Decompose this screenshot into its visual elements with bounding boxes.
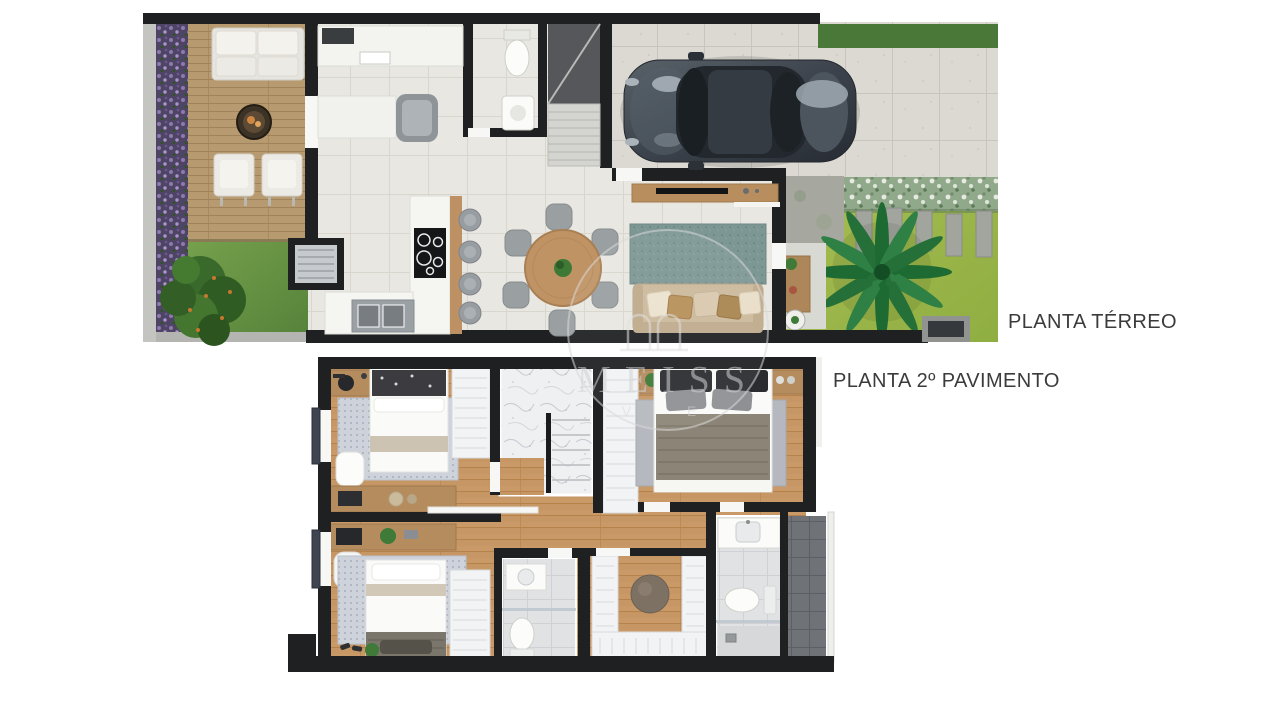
master-door-gap [644,502,670,512]
master-window-frame [816,357,822,447]
floor-plant [365,643,379,657]
staircase [548,24,600,166]
wardrobe-1 [452,368,490,458]
closet-pouf [631,575,669,613]
single-bed-1 [370,368,448,472]
balcony-rail [828,512,834,662]
backyard-sill [156,332,310,342]
laptop [338,491,362,506]
garage-door-gap [616,168,642,181]
car-mirror [688,52,704,60]
window-2 [312,530,331,588]
tv [656,188,728,194]
monitor [336,528,362,545]
second-floor-plan [288,357,834,672]
wall-shelf [428,507,538,513]
window-1 [312,408,331,464]
car-mirror [688,162,704,170]
watermark-subtext: V E [622,403,723,419]
single-bed-2 [366,560,446,660]
master-bathroom [716,516,782,658]
bath1-door-gap [548,548,572,558]
wardrobe-2 [450,570,490,658]
balcony [786,516,826,658]
ground-floor-label: PLANTA TÉRREO [1008,311,1177,334]
watermark-text: MEISS [577,359,759,401]
toilet [505,40,529,76]
front-door-gap [772,243,786,269]
bathroom-1 [502,558,576,658]
stair-railing [546,413,551,493]
ground-floor-plan [143,13,998,346]
closet-door-gap [596,548,630,556]
bath2-door-gap [720,502,744,512]
outdoor-sofa [212,28,304,80]
bedroom1-armchair [336,452,364,486]
toilet-1 [510,618,534,650]
hedge [844,177,998,211]
kitchen-counter-left [318,96,396,138]
car [620,52,860,170]
top-grass-strip [818,24,998,48]
utility-box [295,245,337,283]
kitchen-sink [352,300,414,332]
toilet-2 [725,588,759,612]
second-floor-label: PLANTA 2º PAVIMENTO [833,370,1060,393]
concrete-pad [786,176,844,246]
watermark: MEISS V E [568,230,768,430]
floorplan-canvas: MEISS V E PLANTA TÉRREO PLANTA 2º PAVIME… [0,0,1280,716]
deck-door-gap [305,96,318,148]
entry-porch [782,243,826,330]
kitchen-appliance [322,28,354,44]
powder-door-gap [468,128,490,137]
fire-pit [237,105,271,139]
floorplans-svg: MEISS V E [0,0,1280,716]
bedroom1-door-gap [490,462,500,492]
toilet-tank [504,30,530,40]
table-plant [554,259,572,277]
oven [360,52,390,64]
